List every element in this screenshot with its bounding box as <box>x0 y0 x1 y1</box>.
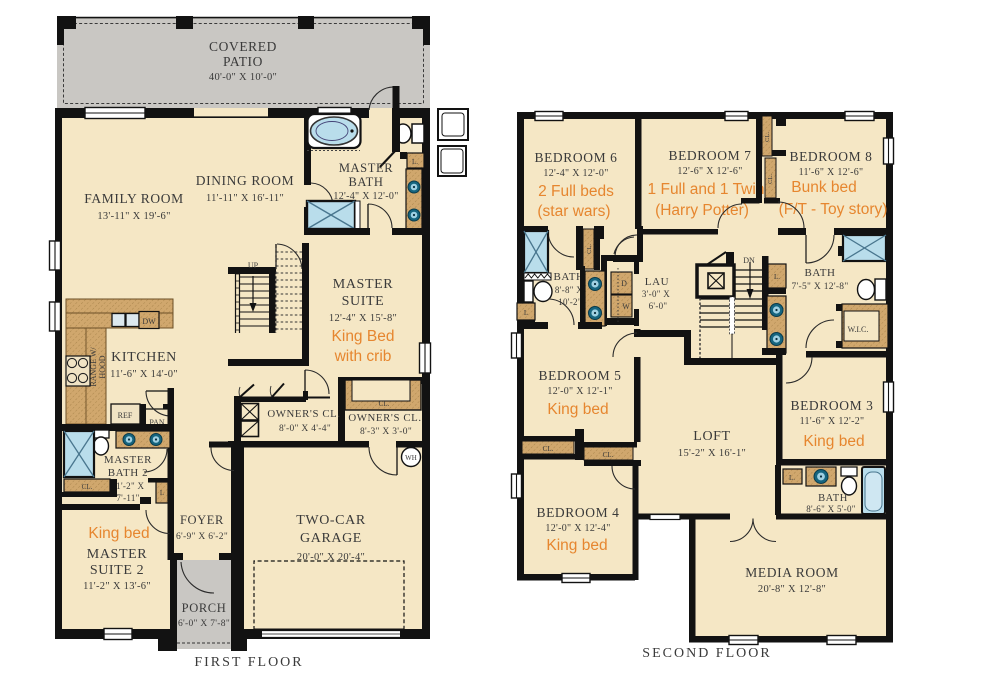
svg-text:CL.: CL. <box>764 132 771 142</box>
svg-text:SECOND FLOOR: SECOND FLOOR <box>642 646 771 661</box>
svg-text:BEDROOM 3: BEDROOM 3 <box>790 398 873 413</box>
svg-text:11'-2" X 13'-6": 11'-2" X 13'-6" <box>83 581 151 592</box>
svg-text:LAU: LAU <box>645 276 669 288</box>
svg-text:Bunk bed: Bunk bed <box>791 179 857 196</box>
svg-text:BEDROOM 4: BEDROOM 4 <box>536 505 619 520</box>
svg-text:10'-2": 10'-2" <box>558 297 582 307</box>
svg-text:BATH: BATH <box>804 267 835 279</box>
svg-text:FIRST FLOOR: FIRST FLOOR <box>194 655 303 670</box>
svg-text:CL.: CL. <box>767 174 774 184</box>
svg-text:PATIO: PATIO <box>223 54 263 69</box>
svg-text:CL.: CL. <box>603 451 614 459</box>
svg-text:20'-8" X 12'-8": 20'-8" X 12'-8" <box>758 584 826 595</box>
svg-text:BATH: BATH <box>553 271 584 283</box>
svg-text:LOFT: LOFT <box>693 429 730 444</box>
svg-text:BEDROOM 5: BEDROOM 5 <box>538 368 621 383</box>
svg-text:King bed: King bed <box>88 525 149 542</box>
svg-text:1 Full and 1 Twin: 1 Full and 1 Twin <box>648 181 765 198</box>
svg-text:CL.: CL. <box>379 400 390 408</box>
svg-text:CL.: CL. <box>586 244 593 254</box>
svg-text:BEDROOM 6: BEDROOM 6 <box>534 150 617 165</box>
svg-text:OWNER'S CL.: OWNER'S CL. <box>348 412 421 424</box>
svg-text:King Bed: King Bed <box>332 328 395 345</box>
svg-text:REF: REF <box>118 411 133 420</box>
svg-text:BATH: BATH <box>348 175 383 189</box>
svg-text:BATH: BATH <box>818 493 848 504</box>
svg-text:W: W <box>622 302 630 311</box>
svg-text:FAMILY ROOM: FAMILY ROOM <box>84 191 183 206</box>
svg-text:L.: L. <box>789 474 795 482</box>
svg-text:MASTER: MASTER <box>104 454 152 466</box>
svg-text:7'-11": 7'-11" <box>116 493 139 503</box>
svg-text:12'-0" X 12'-1": 12'-0" X 12'-1" <box>547 386 612 397</box>
svg-text:BEDROOM 8: BEDROOM 8 <box>789 149 872 164</box>
svg-text:L.: L. <box>774 273 780 281</box>
svg-text:(F/T - Toy story): (F/T - Toy story) <box>779 201 888 218</box>
svg-text:2 Full beds: 2 Full beds <box>538 183 614 200</box>
svg-text:11'-6" X 12'-6": 11'-6" X 12'-6" <box>799 167 864 178</box>
svg-text:RANGE W/: RANGE W/ <box>89 347 98 387</box>
svg-text:King bed: King bed <box>803 433 864 450</box>
svg-text:PORCH: PORCH <box>182 601 227 615</box>
svg-text:6'-9" X 6'-2": 6'-9" X 6'-2" <box>176 532 228 542</box>
svg-text:KITCHEN: KITCHEN <box>111 350 177 365</box>
svg-text:12'-4" X 15'-8": 12'-4" X 15'-8" <box>329 313 397 324</box>
svg-text:UP: UP <box>248 261 259 270</box>
svg-text:MEDIA ROOM: MEDIA ROOM <box>745 565 838 580</box>
svg-text:8'-0" X 4'-4": 8'-0" X 4'-4" <box>279 424 331 434</box>
svg-text:TWO-CAR: TWO-CAR <box>296 513 366 528</box>
svg-text:GARAGE: GARAGE <box>300 531 362 546</box>
svg-text:CL.: CL. <box>82 483 93 491</box>
svg-text:12'-6" X 12'-6": 12'-6" X 12'-6" <box>677 166 742 177</box>
svg-text:11'-6" X 14'-0": 11'-6" X 14'-0" <box>110 369 178 380</box>
svg-text:6'-0" X 7'-8": 6'-0" X 7'-8" <box>178 619 230 629</box>
svg-text:8'-8" X: 8'-8" X <box>555 285 583 295</box>
svg-text:MASTER: MASTER <box>333 277 393 292</box>
svg-text:11'-11" X 16'-11": 11'-11" X 16'-11" <box>206 193 284 204</box>
svg-text:40'-0" X 10'-0": 40'-0" X 10'-0" <box>209 72 277 83</box>
svg-text:WH: WH <box>405 454 417 462</box>
svg-text:3'-0" X: 3'-0" X <box>642 289 670 299</box>
svg-text:13'-11" X 19'-6": 13'-11" X 19'-6" <box>97 211 170 222</box>
svg-text:8'-3" X 3'-0": 8'-3" X 3'-0" <box>360 427 412 437</box>
svg-text:D: D <box>621 279 627 288</box>
svg-text:King bed: King bed <box>547 401 608 418</box>
svg-text:SUITE 2: SUITE 2 <box>90 563 144 578</box>
svg-text:12'-4" X 12'-0": 12'-4" X 12'-0" <box>543 168 608 179</box>
svg-text:W.I.C.: W.I.C. <box>848 325 869 334</box>
svg-text:12'-0" X 12'-4": 12'-0" X 12'-4" <box>545 523 610 534</box>
svg-text:MASTER: MASTER <box>339 161 393 175</box>
svg-text:BEDROOM 7: BEDROOM 7 <box>668 148 751 163</box>
svg-text:COVERED: COVERED <box>209 39 277 54</box>
svg-text:with crib: with crib <box>334 348 392 365</box>
svg-text:L: L <box>524 309 528 317</box>
svg-text:MASTER: MASTER <box>87 547 147 562</box>
svg-text:CL.: CL. <box>543 445 554 453</box>
svg-text:11'-6" X 12'-2": 11'-6" X 12'-2" <box>800 416 865 427</box>
svg-text:BATH 2: BATH 2 <box>108 467 149 479</box>
svg-text:HOOD: HOOD <box>98 355 107 378</box>
svg-text:DN: DN <box>743 256 755 265</box>
svg-text:6'-0": 6'-0" <box>649 301 668 311</box>
svg-text:OWNER'S CL.: OWNER'S CL. <box>267 408 340 420</box>
svg-text:8'-6" X 5'-0": 8'-6" X 5'-0" <box>806 504 856 514</box>
svg-text:DW: DW <box>142 317 156 326</box>
svg-text:(star wars): (star wars) <box>537 203 610 220</box>
svg-text:SUITE: SUITE <box>342 294 385 309</box>
svg-text:L.: L. <box>412 158 418 166</box>
svg-text:7'-5" X 12'-8": 7'-5" X 12'-8" <box>791 282 848 292</box>
svg-text:FOYER: FOYER <box>180 513 224 527</box>
svg-text:DINING ROOM: DINING ROOM <box>196 173 294 188</box>
svg-text:King bed: King bed <box>546 537 607 554</box>
svg-text:15'-2" X 16'-1": 15'-2" X 16'-1" <box>678 448 746 459</box>
svg-text:L: L <box>160 489 164 497</box>
